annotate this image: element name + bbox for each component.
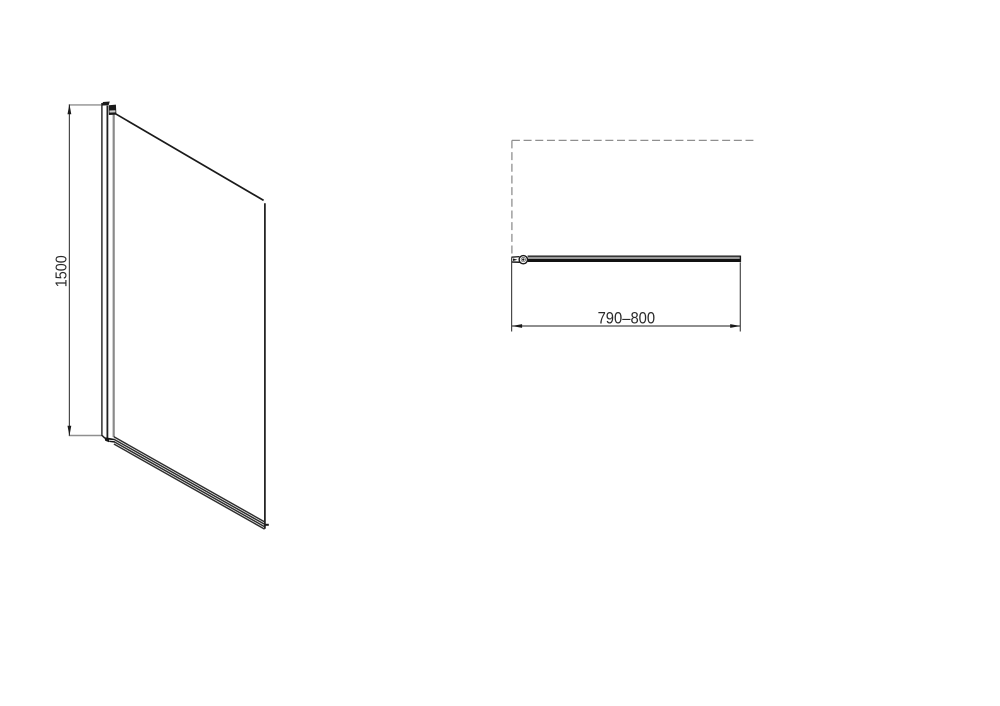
svg-text:1500: 1500: [54, 255, 71, 287]
svg-text:790–800: 790–800: [598, 310, 656, 328]
